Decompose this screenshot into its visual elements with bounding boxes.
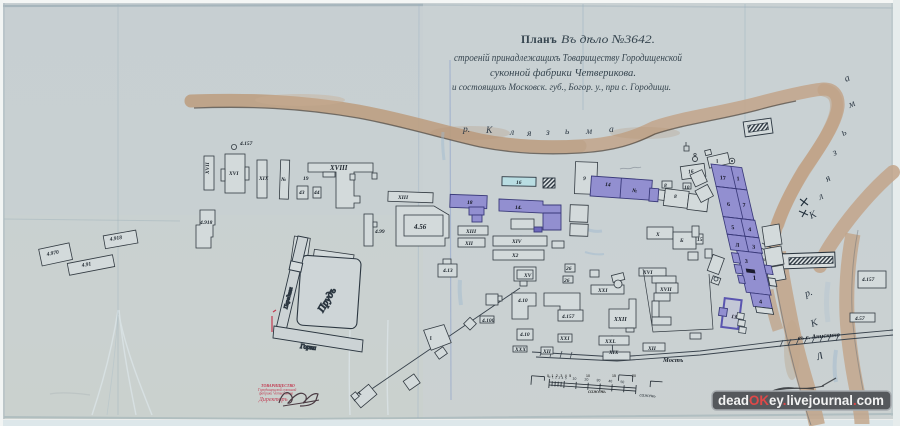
svg-text:строеній принадлежащихъ Това: строеній принадлежащихъ Товариществу Гор… [454,53,682,64]
svg-text:XVII: XVII [659,287,672,293]
svg-text:43: 43 [298,190,305,196]
svg-text:X: X [655,232,660,238]
svg-text:и состоящихъ Московск. губ., Б: и состоящихъ Московск. губ., Богор. у., … [452,82,671,92]
svg-text:15: 15 [697,237,703,243]
svg-text:X2: X2 [511,253,519,259]
svg-text:XXI.: XXI. [604,339,616,345]
svg-text:30: 30 [596,378,600,382]
svg-text:XXX: XXX [514,347,526,353]
svg-text:26: 26 [563,278,570,284]
svg-text:Въ дѣло №3642.: Въ дѣло №3642. [561,32,655,46]
svg-text:4.56: 4.56 [413,223,427,231]
svg-text:р.: р. [462,125,470,135]
svg-text:фабрики Четверикова: фабрики Четверикова [259,392,293,396]
svg-text:16: 16 [688,169,695,176]
svg-text:15: 15 [612,374,616,378]
svg-text:XXI: XXI [559,336,570,342]
svg-text:20: 20 [584,377,588,381]
svg-text:суконной фабрики Четверикова: суконной фабрики Четверикова. [490,67,636,79]
svg-text:4.157: 4.157 [239,141,253,147]
svg-text:Б: Б [679,238,684,244]
svg-text:4.100: 4.100 [481,318,495,324]
svg-text:Мостъ: Мостъ [662,357,684,364]
svg-text:XVI: XVI [228,171,239,177]
svg-text:4.99: 4.99 [374,229,385,235]
svg-text:№: № [280,177,286,183]
svg-text:4.13: 4.13 [442,268,453,274]
svg-text:XIII: XIII [397,195,409,201]
svg-text:я: я [526,129,531,139]
svg-text:8: 8 [664,183,667,189]
svg-text:16: 16 [516,180,522,186]
svg-text:XV: XV [523,273,533,279]
svg-text:4.10: 4.10 [517,298,528,304]
svg-text:4.157: 4.157 [561,314,575,320]
svg-text:з: з [545,128,550,138]
svg-text:XIX: XIX [608,350,619,356]
svg-text:XXII: XXII [613,317,627,323]
svg-text:XIV: XIV [511,239,523,245]
svg-text:сажень: сажень [588,389,606,395]
svg-text:XIII: XIII [465,229,477,235]
svg-text:26: 26 [565,266,572,272]
svg-text:10: 10 [586,374,590,378]
svg-text:л: л [509,128,514,138]
svg-text:18: 18 [467,200,473,206]
svg-text:19: 19 [303,176,309,182]
svg-text:14.: 14. [515,205,522,211]
svg-text:XII: XII [647,346,657,352]
svg-text:К: К [485,126,493,136]
svg-text:4.57: 4.57 [854,316,865,322]
svg-text:м: м [585,127,592,137]
svg-text:Директоръ: Директоръ [258,397,288,403]
svg-text:4.10: 4.10 [519,332,530,338]
svg-text:50: 50 [620,380,624,384]
svg-text:XVI: XVI [642,270,653,276]
svg-text:ь: ь [565,127,570,137]
svg-text:Планъ: Планъ [521,34,557,46]
svg-text:40: 40 [608,379,612,383]
svg-text:20: 20 [632,374,636,378]
svg-text:8: 8 [674,194,677,200]
svg-text:012345: 012345 [547,374,574,378]
svg-text:10: 10 [684,185,690,191]
svg-text:XIX: XIX [258,176,269,182]
svg-text:deadOKey.livejournal.com: deadOKey.livejournal.com [718,392,884,408]
svg-text:XXI: XXI [597,288,608,294]
svg-text:XVII: XVII [205,162,211,175]
svg-text:4.918: 4.918 [199,220,213,226]
svg-text:№: № [631,188,637,194]
svg-text:XII: XII [464,241,474,247]
svg-text:14: 14 [605,182,611,188]
svg-text:44: 44 [313,190,320,196]
svg-text:4.157: 4.157 [861,277,875,283]
svg-text:XVIII: XVIII [329,164,348,172]
svg-text:13: 13 [731,314,737,321]
svg-text:а: а [609,125,614,135]
svg-text:XII: XII [542,349,552,355]
